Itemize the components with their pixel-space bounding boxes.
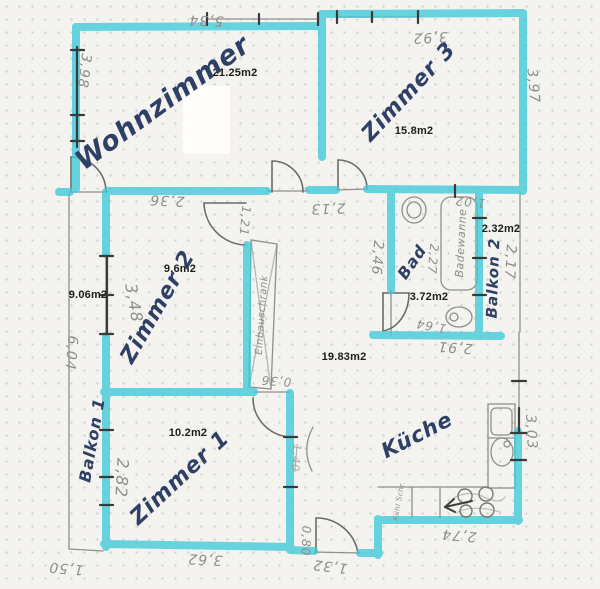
dim-schrank-depth: 0,36 <box>260 373 292 389</box>
dim-balkon1-bottom: 1,50 <box>48 558 84 577</box>
dim-bad-left: 2,46 <box>368 240 386 276</box>
dim-zimmer2-top: 2,36 <box>149 191 185 209</box>
dim-zimmer3-top: 3,92 <box>412 28 448 46</box>
area-label-balkon1: 9.06m2 <box>69 289 108 301</box>
dim-zimmer1-right: 1,40 <box>288 443 303 473</box>
dim-balkon1-length: 6,04 <box>61 335 80 371</box>
area-label-zimmer3: 15.8m2 <box>395 125 434 137</box>
area-label-flur: 19.83m2 <box>322 351 367 363</box>
dim-hall-top: 2,13 <box>310 199 346 216</box>
area-label-bad: 3.72m2 <box>410 291 449 303</box>
dim-bad-bottom: 2,91 <box>437 338 473 356</box>
dim-zimmer1-bottom: 3,62 <box>187 550 223 568</box>
dim-bad-inner: 2,27 <box>425 243 442 275</box>
area-label-balkon2: 2.32m2 <box>482 223 521 235</box>
floor-plan-canvas: 21.25m2 15.8m2 9.6m2 9.06m2 2.32m2 3.72m… <box>0 0 600 589</box>
dim-step: 0,80 <box>298 525 313 556</box>
dim-kueche-bottom: 2,74 <box>441 525 477 544</box>
dim-balkon2-right: 2,17 <box>501 244 519 280</box>
dim-kueche-right: 3,03 <box>522 414 540 450</box>
dim-zimmer3-right: 3,97 <box>523 68 542 104</box>
dim-balkon2-top: 1,02 <box>454 194 486 211</box>
dim-zimmer1-left: 2,82 <box>111 458 132 499</box>
area-label-zimmer1: 10.2m2 <box>169 427 208 439</box>
dim-wohnzimmer-top: 5,34 <box>188 11 224 28</box>
dim-zimmer2-door: 1,21 <box>237 205 254 237</box>
